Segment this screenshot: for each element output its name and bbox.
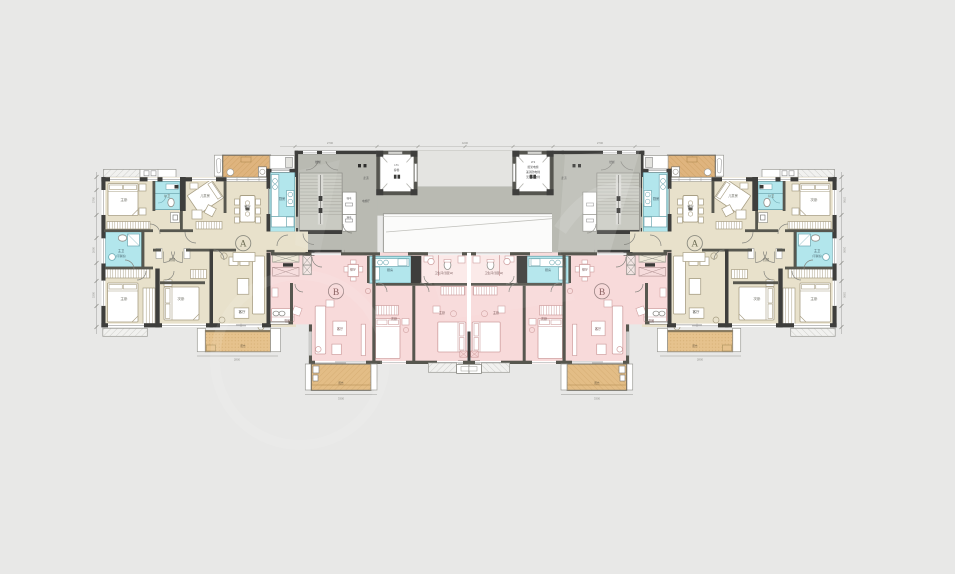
- svg-text:强电: 强电: [347, 196, 352, 200]
- svg-text:3300: 3300: [843, 292, 847, 299]
- svg-text:次卧: 次卧: [177, 296, 185, 301]
- svg-text:3700: 3700: [92, 196, 96, 203]
- svg-text:次卧: 次卧: [391, 316, 398, 321]
- svg-text:主卧: 主卧: [120, 296, 128, 301]
- svg-text:担架电梯: 担架电梯: [527, 165, 538, 169]
- svg-text:阳台: 阳台: [338, 381, 344, 385]
- svg-text:兼消防电梯: 兼消防电梯: [526, 170, 540, 174]
- svg-text:阳台: 阳台: [692, 344, 698, 348]
- svg-text:主卫: 主卫: [814, 248, 821, 253]
- svg-text:A: A: [691, 240, 698, 250]
- svg-text:无障碍电梯: 无障碍电梯: [526, 175, 540, 179]
- svg-text:衣帽: 衣帽: [169, 257, 175, 262]
- svg-text:儿童房: 儿童房: [728, 193, 738, 198]
- svg-text:餐厅: 餐厅: [350, 267, 356, 272]
- svg-text:客厅: 客厅: [595, 326, 602, 331]
- svg-text:LT1: LT1: [394, 163, 399, 167]
- svg-text:3300: 3300: [92, 291, 96, 298]
- svg-text:弱电: 弱电: [347, 215, 352, 219]
- svg-text:2700: 2700: [597, 141, 604, 145]
- svg-text:儿童房: 儿童房: [200, 193, 210, 198]
- svg-text:客厅: 客厅: [693, 309, 700, 314]
- svg-text:B: B: [599, 288, 605, 298]
- svg-text:主卧: 主卧: [120, 197, 128, 202]
- svg-text:2600: 2600: [843, 247, 847, 254]
- svg-text:阳台: 阳台: [594, 381, 600, 385]
- svg-text:餐厅: 餐厅: [582, 267, 588, 272]
- svg-text:走道: 走道: [363, 176, 369, 180]
- svg-text:餐厅: 餐厅: [687, 204, 694, 209]
- svg-text:厨房: 厨房: [279, 196, 285, 201]
- svg-text:厨房: 厨房: [387, 267, 393, 272]
- svg-text:次卧: 次卧: [753, 296, 761, 301]
- svg-text:LT2: LT2: [531, 160, 536, 164]
- svg-text:3700: 3700: [843, 197, 847, 204]
- svg-text:衣帽: 衣帽: [763, 257, 769, 262]
- svg-text:4200: 4200: [462, 141, 469, 145]
- svg-text:2600: 2600: [92, 246, 96, 253]
- svg-text:2700: 2700: [327, 141, 334, 145]
- svg-text:厨房: 厨房: [653, 196, 659, 201]
- svg-text:2800: 2800: [697, 358, 704, 362]
- svg-text:2800: 2800: [234, 358, 241, 362]
- svg-text:次卧: 次卧: [541, 316, 548, 321]
- svg-text:次卧: 次卧: [810, 197, 818, 202]
- svg-text:3300: 3300: [338, 397, 345, 401]
- svg-text:A: A: [240, 240, 247, 250]
- svg-text:公卫: 公卫: [164, 194, 171, 198]
- svg-text:电梯厅: 电梯厅: [362, 199, 370, 203]
- svg-text:餐厅: 餐厅: [244, 204, 251, 209]
- svg-text:公卫: 公卫: [768, 194, 775, 198]
- svg-text:(带淋浴): (带淋浴): [812, 254, 822, 258]
- svg-text:客厅: 客厅: [239, 309, 246, 314]
- svg-text:主卫: 主卫: [118, 248, 125, 253]
- svg-text:客梯: 客梯: [394, 168, 400, 172]
- svg-text:客厅: 客厅: [337, 326, 344, 331]
- svg-text:阳台: 阳台: [240, 344, 246, 348]
- svg-text:书房: 书房: [648, 318, 654, 323]
- svg-text:主卧: 主卧: [810, 296, 818, 301]
- svg-text:(带淋浴): (带淋浴): [116, 254, 126, 258]
- svg-text:3300: 3300: [594, 397, 601, 401]
- svg-text:楼梯: 楼梯: [315, 160, 321, 164]
- svg-text:书房: 书房: [284, 318, 290, 323]
